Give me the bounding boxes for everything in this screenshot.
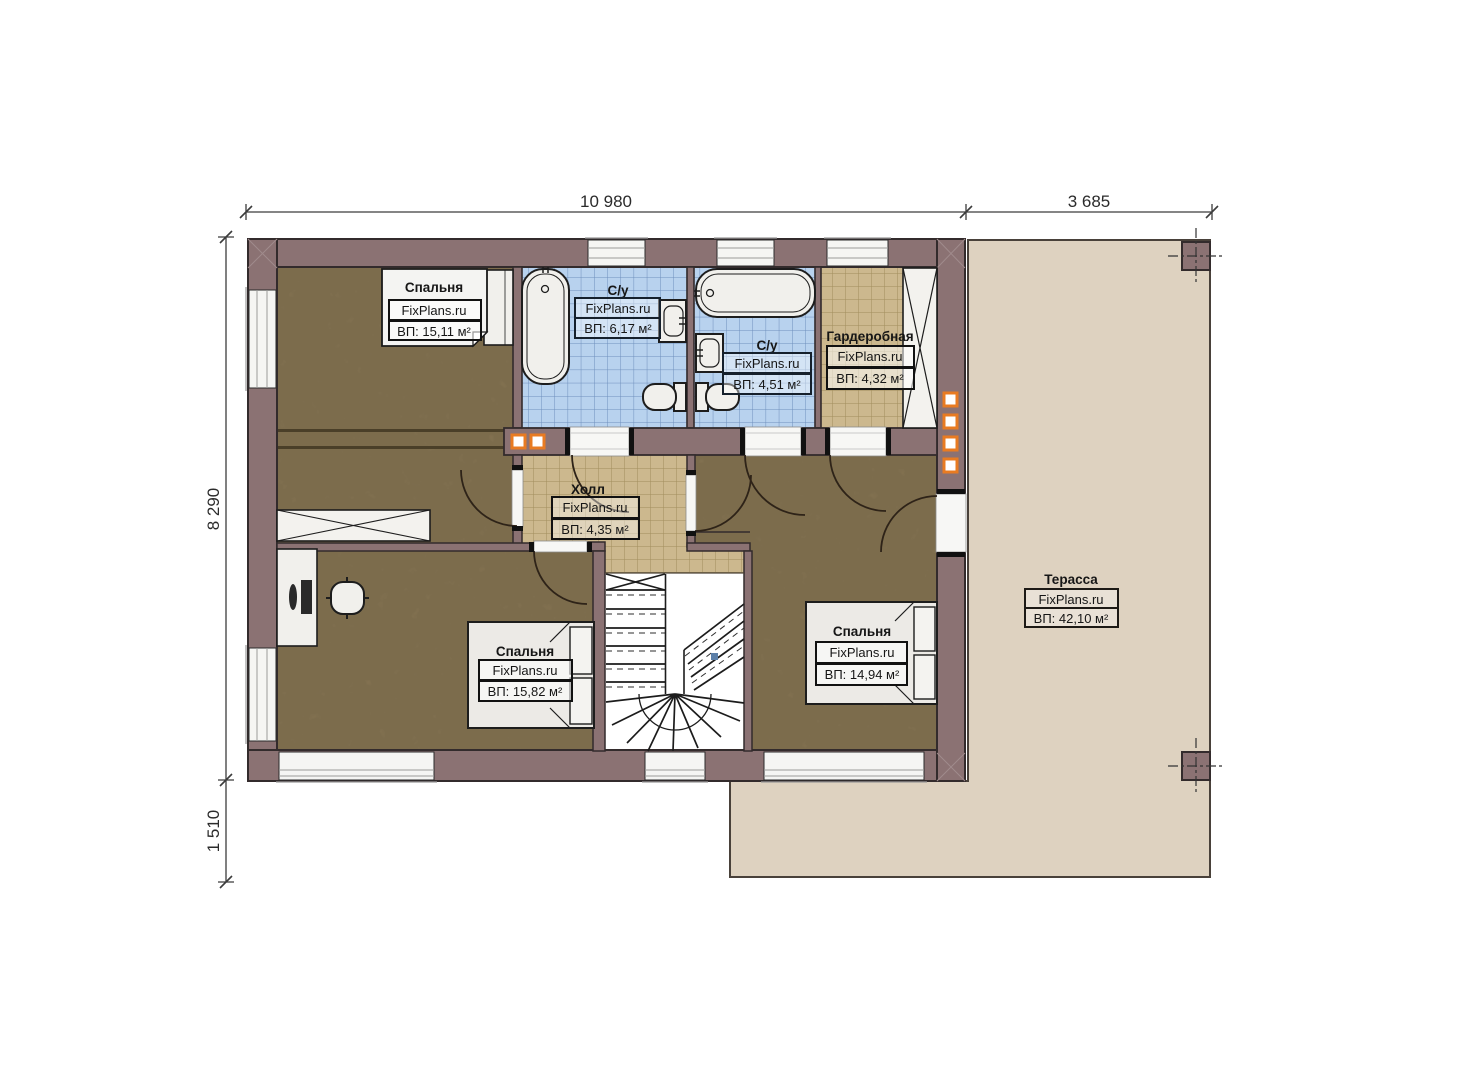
svg-text:3 685: 3 685 [1068,192,1111,211]
svg-text:10 980: 10 980 [580,192,632,211]
svg-text:FixPlans.ru: FixPlans.ru [1038,592,1103,607]
svg-text:Спальня: Спальня [833,624,891,639]
svg-text:Спальня: Спальня [405,280,463,295]
svg-text:FixPlans.ru: FixPlans.ru [829,645,894,660]
svg-text:1 510: 1 510 [204,810,223,853]
svg-text:Холл: Холл [571,482,605,497]
svg-text:FixPlans.ru: FixPlans.ru [734,356,799,371]
svg-text:Спальня: Спальня [496,644,554,659]
svg-text:ВП: 15,82 м²: ВП: 15,82 м² [488,684,563,699]
svg-text:8 290: 8 290 [204,488,223,531]
svg-text:С/у: С/у [607,283,629,298]
svg-text:ВП: 4,51 м²: ВП: 4,51 м² [733,377,801,392]
svg-text:ВП: 4,35 м²: ВП: 4,35 м² [561,522,629,537]
svg-text:ВП: 42,10 м²: ВП: 42,10 м² [1034,611,1109,626]
svg-text:Терасса: Терасса [1044,572,1098,587]
svg-text:FixPlans.ru: FixPlans.ru [492,663,557,678]
svg-text:С/у: С/у [756,338,778,353]
svg-text:FixPlans.ru: FixPlans.ru [562,500,627,515]
svg-text:FixPlans.ru: FixPlans.ru [837,349,902,364]
svg-text:ВП: 15,11 м²: ВП: 15,11 м² [397,324,471,339]
svg-text:ВП: 4,32 м²: ВП: 4,32 м² [836,371,904,386]
svg-text:FixPlans.ru: FixPlans.ru [585,301,650,316]
svg-text:ВП: 6,17 м²: ВП: 6,17 м² [584,321,652,336]
svg-text:Гардеробная: Гардеробная [826,329,913,344]
svg-text:ВП: 14,94 м²: ВП: 14,94 м² [825,667,900,682]
svg-text:FixPlans.ru: FixPlans.ru [401,303,466,318]
